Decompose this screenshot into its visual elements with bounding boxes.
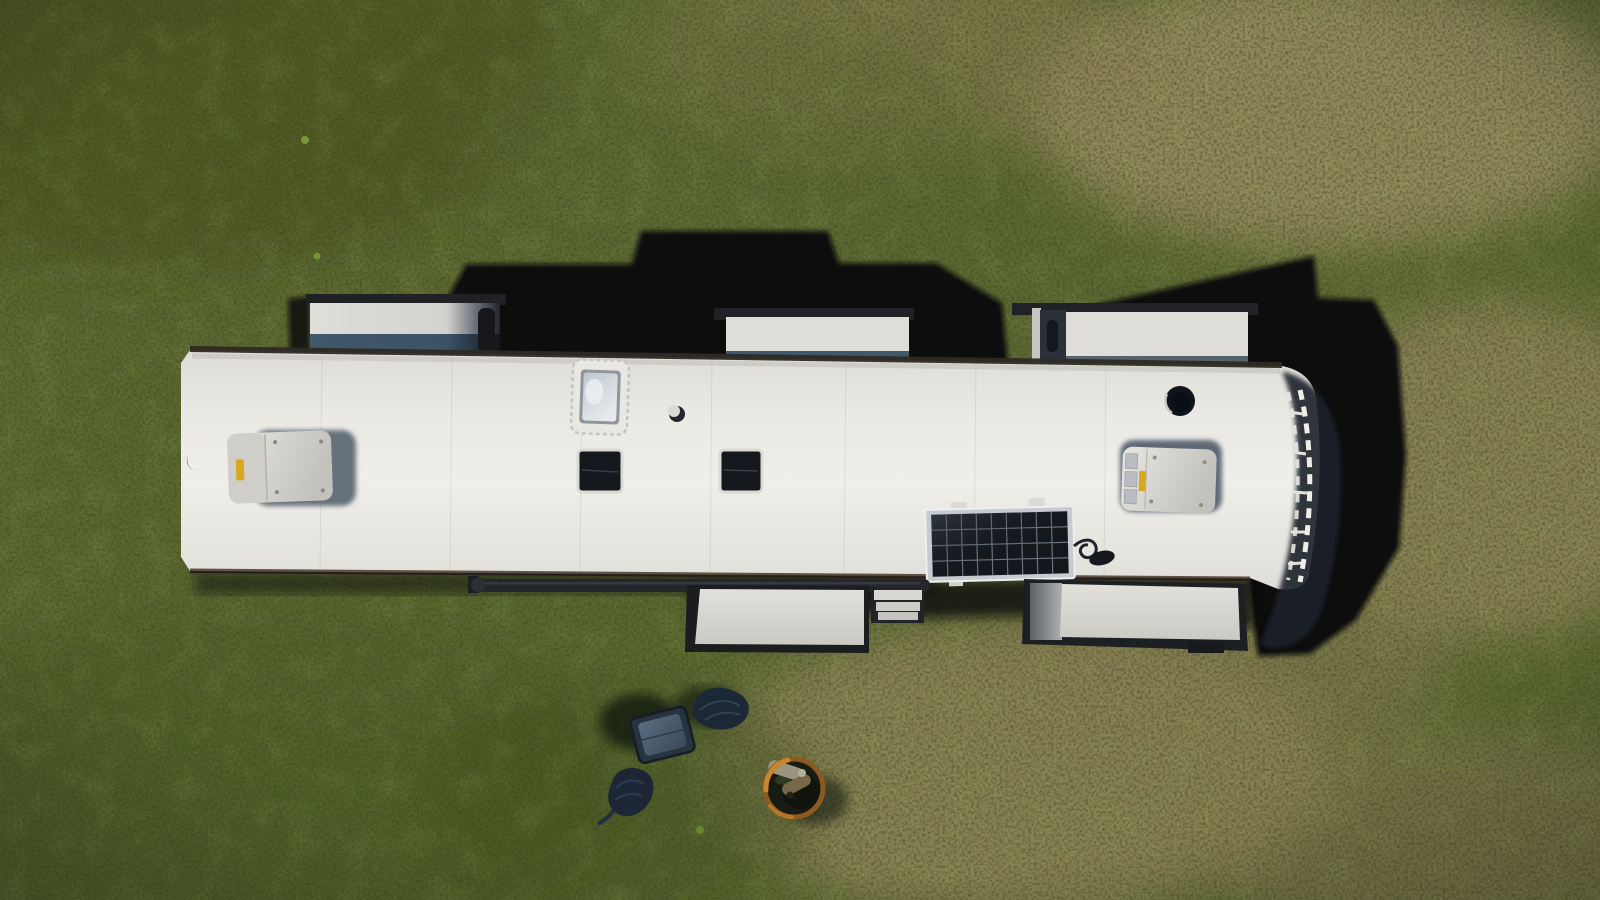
vignette (0, 0, 1600, 900)
aerial-photo (0, 0, 1600, 900)
scene-canvas (0, 0, 1600, 900)
